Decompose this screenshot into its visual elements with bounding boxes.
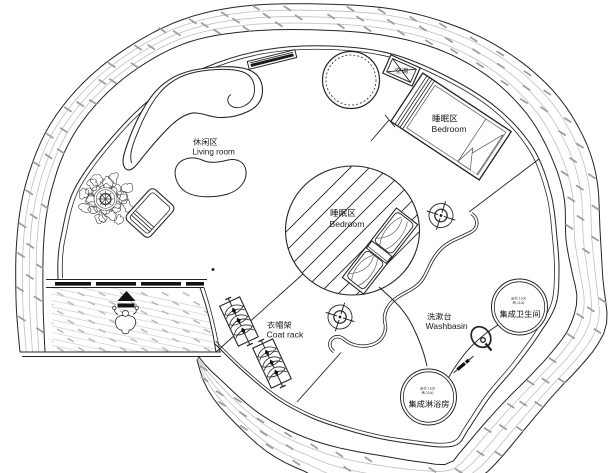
svg-text:Bedroom: Bedroom — [330, 219, 365, 229]
svg-text:Coat rack: Coat rack — [267, 330, 304, 340]
svg-text:Living room: Living room — [193, 148, 236, 157]
svg-text:Washbasin: Washbasin — [426, 321, 468, 331]
svg-text:Bedroom: Bedroom — [432, 124, 467, 134]
